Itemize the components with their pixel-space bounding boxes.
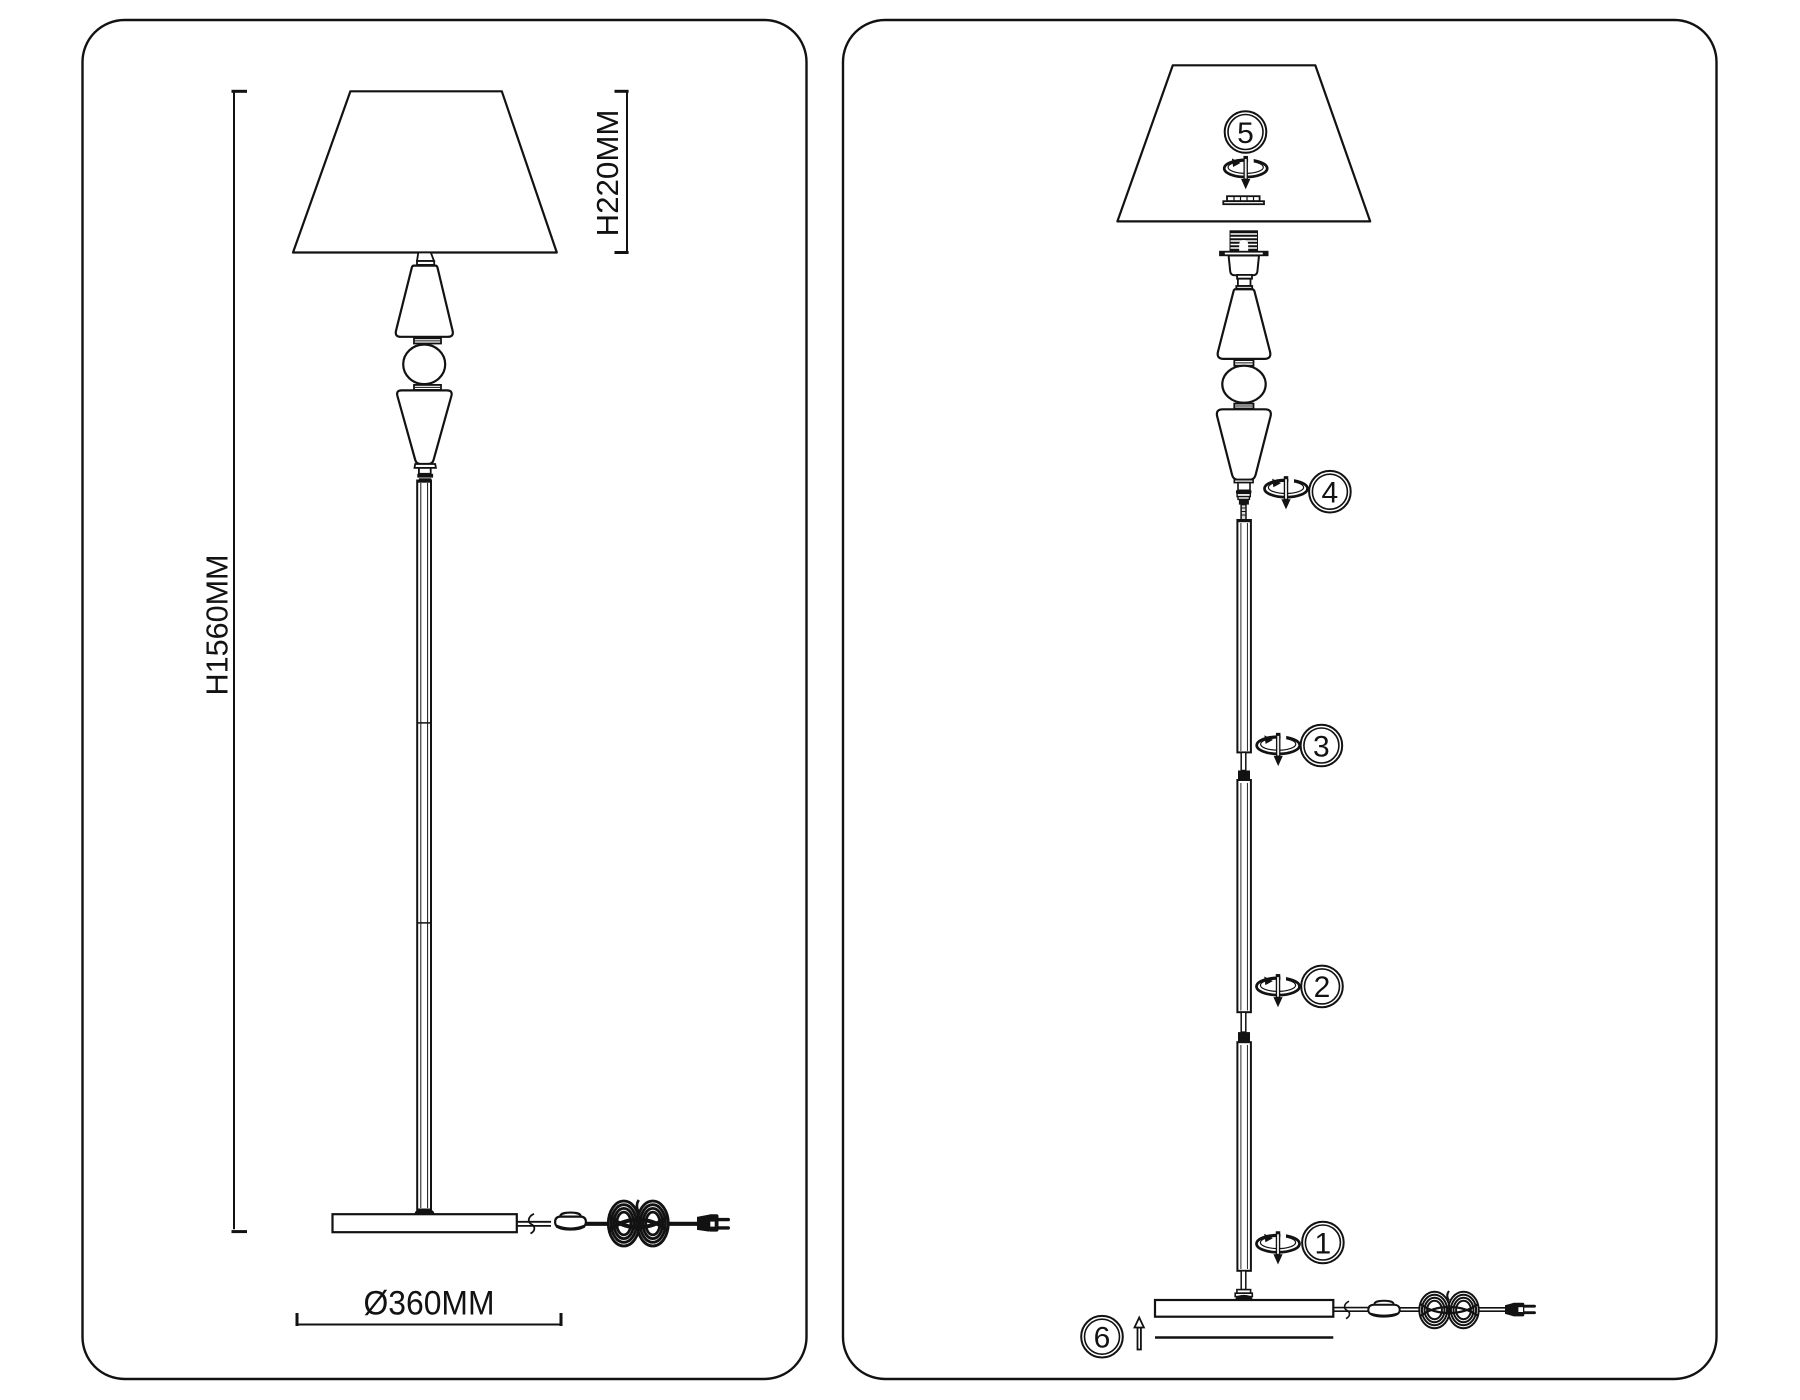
svg-text:6: 6 — [1094, 1322, 1111, 1355]
svg-text:2: 2 — [1314, 971, 1331, 1004]
svg-text:5: 5 — [1237, 117, 1254, 150]
svg-text:H220MM: H220MM — [590, 110, 625, 237]
svg-text:3: 3 — [1313, 730, 1330, 763]
svg-text:H1560MM: H1560MM — [199, 555, 234, 696]
svg-text:Ø360MM: Ø360MM — [364, 1285, 495, 1323]
svg-text:1: 1 — [1315, 1227, 1332, 1260]
svg-text:4: 4 — [1322, 477, 1339, 510]
